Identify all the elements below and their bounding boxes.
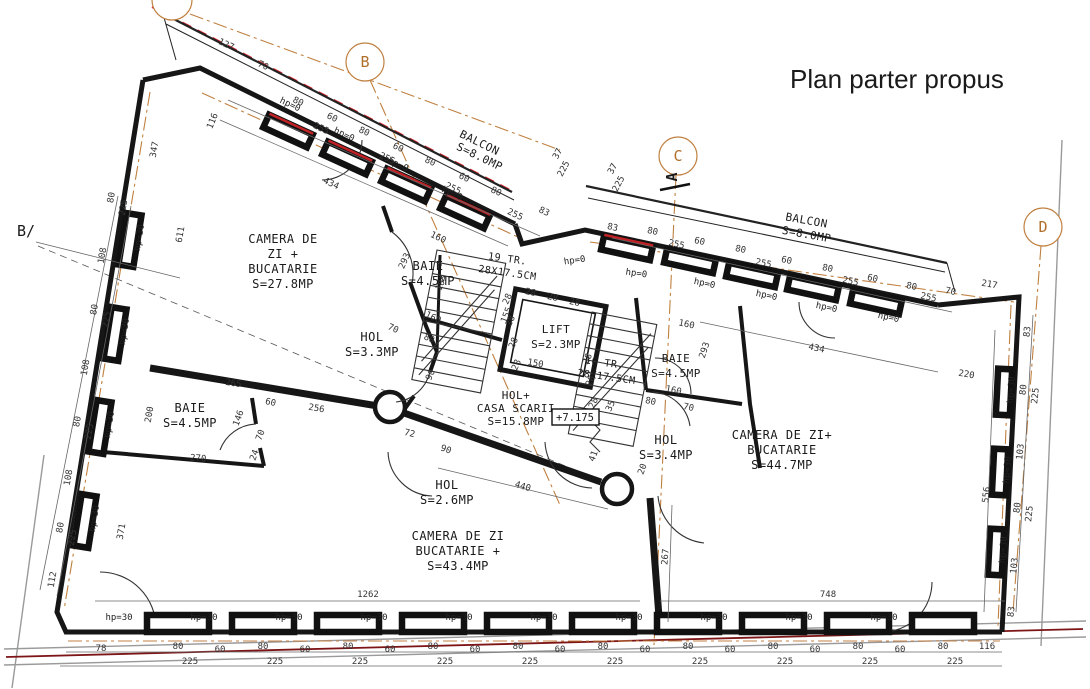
svg-text:225: 225	[352, 657, 368, 667]
svg-text:hp=30: hp=30	[105, 613, 132, 623]
svg-text:hp=30: hp=30	[615, 613, 642, 623]
room-baie3: BAIE	[662, 352, 691, 365]
svg-text:S=3.4MP: S=3.4MP	[639, 448, 693, 462]
svg-text:60: 60	[555, 645, 566, 655]
svg-text:83: 83	[1022, 326, 1033, 338]
svg-text:80: 80	[1018, 384, 1029, 396]
round-column	[602, 474, 632, 504]
svg-text:S=4.5MP: S=4.5MP	[163, 416, 217, 430]
svg-text:225: 225	[1030, 387, 1042, 404]
svg-text:103: 103	[1009, 557, 1021, 574]
svg-text:60: 60	[215, 645, 226, 655]
svg-text:225: 225	[267, 657, 283, 667]
room-lift: LIFT	[542, 323, 571, 336]
svg-text:60: 60	[470, 645, 481, 655]
svg-text:225: 225	[947, 657, 963, 667]
svg-text:80: 80	[768, 642, 779, 652]
svg-text:60: 60	[300, 645, 311, 655]
svg-text:225: 225	[862, 657, 878, 667]
drawing-title: Plan parter propus	[790, 64, 1004, 94]
svg-text:ZI +: ZI +	[268, 247, 299, 261]
svg-text:270: 270	[190, 453, 207, 464]
svg-text:60: 60	[385, 645, 396, 655]
svg-text:83: 83	[1006, 606, 1017, 618]
svg-text:116: 116	[979, 642, 995, 652]
grid-label-b-left: B/	[17, 222, 35, 240]
round-column	[375, 392, 405, 422]
svg-text:80: 80	[1012, 502, 1023, 514]
room-baie2: BAIE	[175, 401, 206, 415]
svg-text:BUCATARIE: BUCATARIE	[747, 443, 817, 457]
svg-text:267: 267	[660, 548, 671, 565]
svg-text:748: 748	[820, 590, 836, 600]
svg-text:80: 80	[258, 642, 269, 652]
svg-text:80: 80	[106, 191, 118, 203]
svg-text:225: 225	[692, 657, 708, 667]
grid-label-d: D	[1038, 218, 1047, 236]
svg-text:225: 225	[607, 657, 623, 667]
section-marker-a: A	[663, 172, 681, 181]
svg-text:CASA SCARII: CASA SCARII	[477, 402, 555, 415]
svg-text:80: 80	[343, 642, 354, 652]
svg-text:S=2.3MP: S=2.3MP	[531, 338, 581, 351]
svg-text:225: 225	[522, 657, 538, 667]
svg-text:hp=30: hp=30	[1002, 456, 1014, 484]
room-hol2: HOL	[435, 478, 458, 492]
svg-text:80: 80	[89, 303, 101, 315]
svg-text:80: 80	[598, 642, 609, 652]
room-camera1: CAMERA DE	[248, 232, 318, 246]
svg-text:1262: 1262	[357, 590, 379, 600]
floor-plan-drawing: B C D B/ A Plan parter propus CAMERA DE …	[0, 0, 1090, 689]
svg-text:80: 80	[683, 642, 694, 652]
svg-text:78: 78	[96, 644, 107, 654]
svg-text:BUCATARIE +: BUCATARIE +	[416, 544, 501, 558]
svg-text:hp=30: hp=30	[530, 613, 557, 623]
svg-text:80: 80	[173, 642, 184, 652]
svg-text:hp=30: hp=30	[785, 613, 812, 623]
svg-text:hp=30: hp=30	[998, 536, 1010, 564]
svg-text:S=4.5MP: S=4.5MP	[651, 367, 701, 380]
svg-text:225: 225	[437, 657, 453, 667]
svg-text:60: 60	[895, 645, 906, 655]
grid-label-b: B	[360, 53, 369, 71]
grid-label-c: C	[673, 147, 682, 165]
room-camera3: CAMERA DE ZI+	[732, 428, 832, 442]
svg-text:60: 60	[810, 645, 821, 655]
svg-text:BUCATARIE: BUCATARIE	[248, 262, 318, 276]
room-hol-scarii: HOL+	[502, 389, 531, 402]
svg-text:103: 103	[1015, 443, 1027, 460]
svg-text:60: 60	[640, 645, 651, 655]
svg-text:80: 80	[72, 415, 84, 427]
elevation-value: +7.175	[556, 412, 594, 424]
svg-text:hp=30: hp=30	[275, 613, 302, 623]
svg-text:S=15.8MP: S=15.8MP	[488, 415, 545, 428]
svg-text:225: 225	[1024, 505, 1036, 522]
svg-text:hp=30: hp=30	[870, 613, 897, 623]
svg-text:S=43.4MP: S=43.4MP	[427, 559, 489, 573]
room-baie1: BAIE	[413, 259, 444, 273]
svg-text:225: 225	[777, 657, 793, 667]
svg-text:60: 60	[725, 645, 736, 655]
svg-text:S=27.8MP: S=27.8MP	[252, 277, 314, 291]
svg-text:hp=30: hp=30	[1006, 376, 1018, 404]
svg-text:80: 80	[428, 642, 439, 652]
svg-text:80: 80	[55, 521, 67, 533]
svg-text:80: 80	[853, 642, 864, 652]
svg-text:556: 556	[981, 486, 993, 503]
room-camera2: CAMERA DE ZI	[412, 529, 505, 543]
svg-text:80: 80	[938, 642, 949, 652]
room-hol1: HOL	[360, 330, 383, 344]
room-hol3: HOL	[654, 433, 677, 447]
svg-text:hp=30: hp=30	[700, 613, 727, 623]
svg-text:hp=30: hp=30	[360, 613, 387, 623]
svg-text:S=3.3MP: S=3.3MP	[345, 345, 399, 359]
svg-text:S=44.7MP: S=44.7MP	[751, 458, 813, 472]
svg-text:S=2.6MP: S=2.6MP	[420, 493, 474, 507]
svg-text:225: 225	[182, 657, 198, 667]
svg-text:hp=30: hp=30	[445, 613, 472, 623]
svg-text:hp=30: hp=30	[190, 613, 217, 623]
svg-text:80: 80	[513, 642, 524, 652]
